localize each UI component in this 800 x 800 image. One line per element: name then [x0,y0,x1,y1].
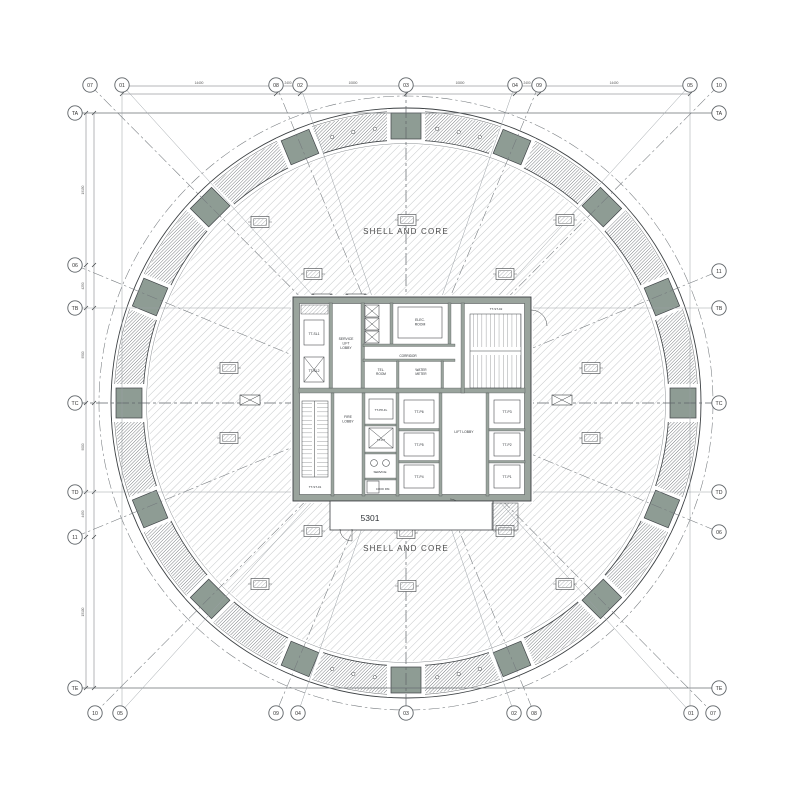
svg-text:TA: TA [72,111,79,117]
grid-bubble-TE: TE [68,681,82,695]
room-label-tt-p2: TT-P2 [502,443,511,447]
grid-bubble-TD: TD [712,485,726,499]
louvre-dot [352,672,355,675]
grid-bubble-TE: TE [712,681,726,695]
interior-column [579,433,603,444]
shell-core-label-top: SHELL AND CORE [363,227,449,236]
svg-text:02: 02 [297,83,303,89]
louvre-dot [436,676,439,679]
room-label-tt-p8-fl: TT-P8-FL [375,408,388,412]
svg-text:TB: TB [716,306,723,312]
dimension-text: 9500 [81,351,85,358]
room-label-tt-p3: TT-P3 [502,410,511,414]
svg-text:09: 09 [273,711,279,717]
grid-bubble-TC: TC [712,396,726,410]
svg-text:TD: TD [716,490,723,496]
grid-bubble-TC: TC [68,396,82,410]
interior-column [493,269,517,280]
dimension-text: 10800 [456,81,465,85]
svg-text:07: 07 [87,83,93,89]
svg-text:TD: TD [72,490,79,496]
svg-text:05: 05 [117,711,123,717]
grid-bubble-09: 09 [269,706,283,720]
interior-column [553,215,577,226]
svg-text:02: 02 [511,711,517,717]
interior-column [217,363,241,374]
grid-bubble-03: 03 [399,706,413,720]
room-label-water-meter: WATERMETER [415,368,427,376]
interior-column [248,579,272,590]
interior-column [579,363,603,374]
interior-column [395,581,419,592]
dimension-text: 14400 [610,81,619,85]
louvre-dot [331,667,334,670]
shell-core-label-bottom: SHELL AND CORE [363,544,449,553]
svg-text:03: 03 [403,83,409,89]
room-label-tt-sl1: TT-SL1 [308,332,319,336]
grid-bubble-04: 04 [508,78,522,92]
grid-bubble-07: 07 [83,78,97,92]
svg-text:11: 11 [72,535,77,541]
dimension-text: 2400 [523,81,530,85]
grid-bubble-TA: TA [712,106,726,120]
grid-bubble-11: 11 [712,264,726,278]
floor-plan-drawing: 1440024001080010800240014400191504250950… [0,0,800,800]
grid-bubble-06: 06 [712,525,726,539]
grid-bubble-04: 04 [291,706,305,720]
svg-text:TE: TE [716,686,723,692]
interior-column [553,579,577,590]
svg-text:09: 09 [536,83,542,89]
room-label-tt-p5: TT-P5 [414,443,423,447]
grid-bubble-05: 05 [113,706,127,720]
room-label-tt-st-02: TT-ST-02 [490,307,503,311]
grid-bubble-02: 02 [507,706,521,720]
room-label-tt-p4: TT-P4 [414,475,423,479]
louvre-dot [457,130,460,133]
louvre-dot [373,127,376,130]
grid-bubble-06: 06 [68,258,82,272]
floor-plan-page: 1440024001080010800240014400191504250950… [0,0,800,800]
interior-column [248,217,272,228]
grid-bubble-TA: TA [68,106,82,120]
grid-bubble-01: 01 [115,78,129,92]
svg-text:03: 03 [403,711,409,717]
svg-text:08: 08 [273,83,279,89]
grid-bubble-09: 09 [532,78,546,92]
grid-bubble-05: 05 [683,78,697,92]
louvre-dot [436,127,439,130]
svg-text:06: 06 [72,263,78,269]
louvre-dot [373,676,376,679]
louvre-dot [478,667,481,670]
svg-text:05: 05 [687,83,693,89]
grid-bubble-11: 11 [68,530,82,544]
dimension-text: 4250 [81,282,85,289]
grid-bubble-TB: TB [68,301,82,315]
louvre-dot [457,672,460,675]
svg-text:07: 07 [710,711,716,717]
svg-text:10: 10 [716,83,722,89]
room-label-lift-lobby: LIFT LOBBY [454,430,474,434]
dimension-text: 14400 [195,81,204,85]
grid-bubble-TD: TD [68,485,82,499]
grid-bubble-02: 02 [293,78,307,92]
louvre-dot [352,130,355,133]
grid-bubble-TB: TB [712,301,726,315]
grid-bubble-10: 10 [712,78,726,92]
svg-text:TE: TE [72,686,79,692]
louvre-dot [478,135,481,138]
column-x-marker [240,395,260,405]
dimension-text: 2400 [284,81,291,85]
svg-text:04: 04 [295,711,301,717]
grid-bubble-07: 07 [706,706,720,720]
interior-column [395,215,419,226]
svg-text:10: 10 [92,711,98,717]
dimension-text: 9000 [81,443,85,450]
grid-bubble-10: 10 [88,706,102,720]
room-label-elec-room: ELEC.ROOM [415,318,426,326]
room-label-tt-sl2: TT-SL2 [308,369,319,373]
svg-text:11: 11 [716,269,721,275]
grid-bubble-08: 08 [269,78,283,92]
dimension-text: 10800 [349,81,358,85]
grid-bubble-01: 01 [684,706,698,720]
dimension-text: 15100 [81,607,85,616]
dimension-text: 4450 [81,510,85,517]
svg-text:TB: TB [72,306,79,312]
room-label-tt-p6: TT-P6 [414,410,423,414]
grid-bubble-03: 03 [399,78,413,92]
svg-text:08: 08 [531,711,537,717]
room-label-tt-p1: TT-P1 [502,475,511,479]
svg-text:01: 01 [119,83,125,89]
column-x-marker [552,395,572,405]
room-label-corridor: CORRIDOR [399,354,417,358]
dimension-text: 19150 [81,185,85,194]
svg-text:04: 04 [512,83,518,89]
unit-number-label: 5301 [361,513,380,523]
room-label-cook-rm: COOK RM. [376,487,390,491]
room-label-service: SERVICE [373,470,386,474]
room-label-tt-p7: TT-P7 [377,438,385,442]
grid-bubble-08: 08 [527,706,541,720]
svg-text:06: 06 [716,530,722,536]
interior-column [301,526,325,537]
room-label-tt-st-01: TT-ST-01 [309,485,322,489]
interior-column [217,433,241,444]
svg-text:TC: TC [72,401,79,407]
svg-text:01: 01 [688,711,694,717]
louvre-dot [331,135,334,138]
interior-column [301,269,325,280]
svg-text:TA: TA [716,111,723,117]
svg-text:TC: TC [716,401,723,407]
